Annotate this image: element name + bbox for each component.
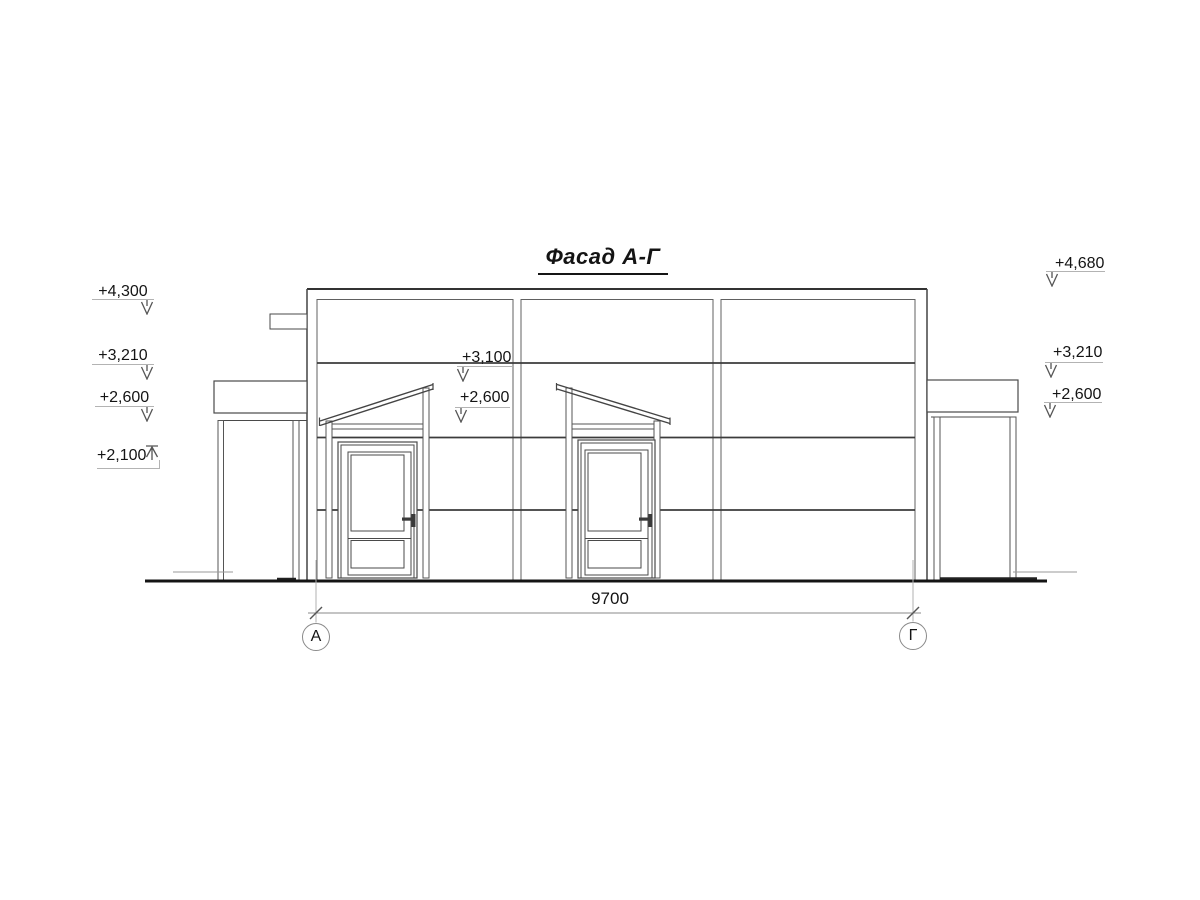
elevation-mark-left-3: +2,600 [95,389,154,429]
elevation-mark-right-3: +2,600 [1044,386,1102,426]
elevation-arrow-down-icon [454,408,468,423]
elevation-value: +3,210 [1053,344,1111,362]
elevation-mark-left-2: +3,210 [92,347,154,387]
elevation-value: +3,100 [462,349,517,367]
axis-bubble-g: Г [899,622,927,650]
elevation-arrow-down-icon [1044,363,1058,378]
elevation-arrow-down-icon [1043,403,1057,418]
drawing-title: Фасад А-Г [538,244,668,275]
elevation-value: +2,100 [97,447,149,465]
elevation-mark-left-4: +2,100 [97,447,160,487]
drawing-canvas [0,0,1200,900]
elevation-value: +2,600 [460,389,515,407]
elevation-arrow-down-icon [456,367,470,382]
canopy-left [214,381,307,581]
facade-elevation-drawing: Фасад А-Г +4,300 +3,210 +2,600 +2,100 +3… [0,0,1200,900]
roof-pipe [270,314,307,329]
elevation-mark-right-2: +3,210 [1045,344,1103,384]
elevation-arrow-down-icon [140,365,154,380]
elevation-arrow-down-icon [140,407,154,422]
elevation-mark-center-1: +3,100 [457,349,512,389]
elevation-mark-right-1: +4,680 [1046,255,1105,295]
elevation-value: +3,210 [92,347,154,365]
door-right [557,383,671,578]
axis-bubble-a: А [302,623,330,651]
elevation-mark-left-1: +4,300 [92,283,154,323]
elevation-mark-center-2: +2,600 [455,389,510,429]
elevation-arrow-up-icon [145,445,159,461]
canopy-right [927,380,1018,581]
elevation-connector [159,460,160,468]
dimension-label: 9700 [583,589,637,609]
door-left [320,383,434,578]
elevation-arrow-down-icon [140,300,154,315]
elevation-value: +2,600 [95,389,154,407]
elevation-arrow-down-icon [1045,272,1059,287]
elevation-shelf [97,468,160,469]
